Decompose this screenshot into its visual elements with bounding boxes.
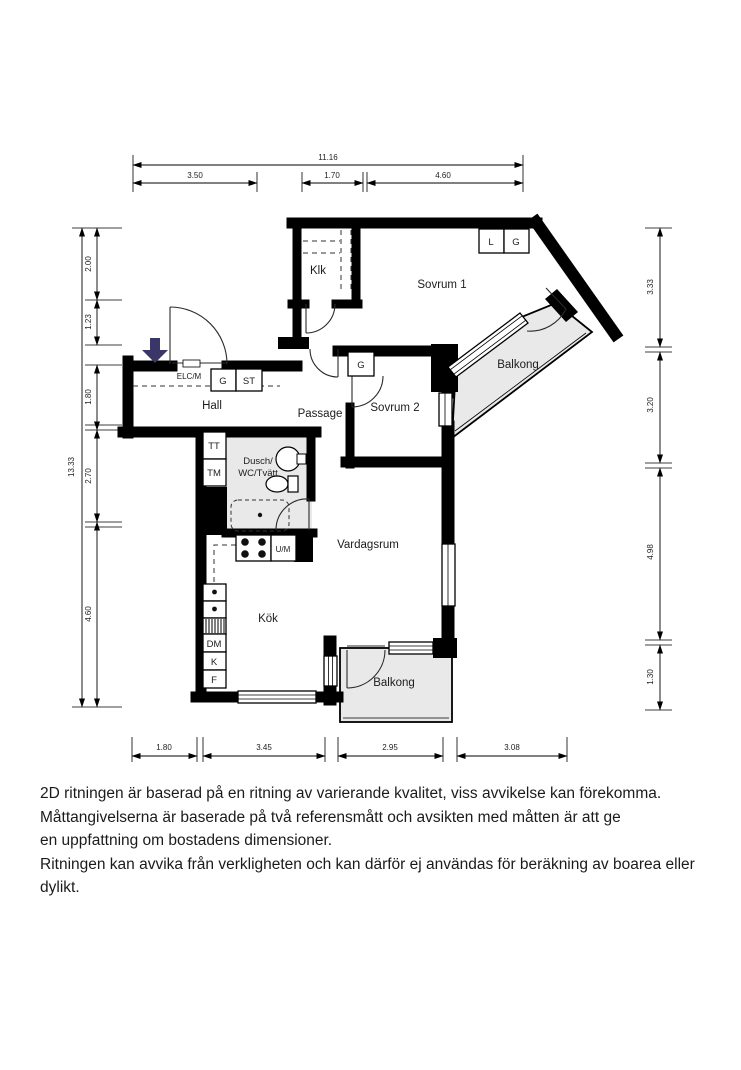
room-label-sovrum2: Sovrum 2 (370, 402, 419, 414)
room-label-klk: Klk (310, 265, 326, 277)
label-um: U/M (276, 545, 291, 554)
dim-bottom-4: 3.08 (504, 743, 520, 752)
wall-jamb-sovrum1-door (278, 337, 309, 349)
room-label-vardagsrum: Vardagsrum (337, 539, 399, 551)
floor-plan-canvas: Klk Sovrum 1 Sovrum 2 Balkong Hall Passa… (0, 0, 741, 1070)
room-label-balkong-upper: Balkong (497, 359, 539, 371)
label-g-sovrum1: G (512, 237, 519, 248)
dim-left-4: 2.70 (84, 468, 93, 484)
disclaimer-line-3: en uppfattning om bostadens dimensioner. (40, 829, 730, 853)
dim-right-3: 4.98 (646, 544, 655, 560)
wall-corner-balcony (433, 638, 457, 658)
dim-left-2: 1.23 (84, 314, 93, 330)
outer-walls (123, 223, 537, 697)
entry-door-arc (170, 307, 227, 364)
dim-bottom-1: 1.80 (156, 743, 172, 752)
livingroom-east-window (442, 544, 455, 606)
room-label-bathroom-1: Dusch/ (243, 456, 273, 467)
kitchen-window (238, 691, 316, 703)
dim-left-total: 13.33 (67, 456, 76, 477)
sink-drain-2 (212, 607, 217, 612)
stove (236, 535, 271, 561)
wall-block-kitchen (294, 529, 313, 562)
room-label-hall: Hall (202, 400, 222, 412)
stove-burner-1 (241, 538, 249, 546)
label-st-hall: ST (243, 376, 255, 387)
dim-top-total: 11.16 (318, 153, 338, 162)
elcm-cabinet (183, 360, 200, 367)
label-tm: TM (207, 468, 221, 479)
counter-hatch-lines (206, 619, 224, 633)
label-tt: TT (208, 441, 220, 452)
label-l-sovrum1: L (488, 237, 493, 248)
dim-left-5: 4.60 (84, 606, 93, 622)
disclaimer-line-1: 2D ritningen är baserad på en ritning av… (40, 782, 730, 806)
room-labels: Klk Sovrum 1 Sovrum 2 Balkong Hall Passa… (202, 265, 539, 689)
bathroom-sink-tap (297, 454, 306, 464)
dim-top-3: 4.60 (435, 171, 451, 180)
dim-right-4: 1.30 (646, 669, 655, 685)
room-label-sovrum1: Sovrum 1 (417, 279, 466, 291)
room-label-passage: Passage (298, 408, 343, 420)
sink-drain-1 (212, 590, 217, 595)
disclaimer-line-2: Måttangivelserna är baserade på två refe… (40, 806, 730, 830)
sovrum2-window (439, 393, 452, 426)
label-dm: DM (207, 639, 222, 650)
wall-block-laundry (197, 487, 227, 535)
livingroom-west-balcony-window (324, 656, 337, 686)
dim-bottom-3: 2.95 (382, 743, 398, 752)
dim-right-1: 3.33 (646, 279, 655, 295)
dim-bottom-2: 3.45 (256, 743, 272, 752)
dim-top-1: 3.50 (187, 171, 203, 180)
label-k: K (211, 657, 218, 668)
toilet-tank (288, 476, 298, 492)
entry-arrow-icon (142, 338, 168, 363)
label-elcm: ELC/M (177, 372, 202, 381)
room-label-balkong-lower: Balkong (373, 677, 415, 689)
klk-door-arc (306, 304, 335, 333)
walls (123, 222, 615, 699)
room-label-kok: Kök (258, 613, 278, 625)
dim-left-3: 1.80 (84, 389, 93, 405)
dim-right-2: 3.20 (646, 397, 655, 413)
floor-plan-page: Klk Sovrum 1 Sovrum 2 Balkong Hall Passa… (0, 0, 741, 1070)
room-label-bathroom-2: WC/Tvätt (238, 468, 278, 479)
stove-burner-2 (258, 538, 266, 546)
label-g-sovrum2: G (357, 360, 364, 371)
label-g-hall: G (219, 376, 226, 387)
stove-burner-4 (258, 550, 266, 558)
dim-left-1: 2.00 (84, 256, 93, 272)
kitchen-counter-dashed (214, 545, 236, 583)
stove-burner-3 (241, 550, 249, 558)
bathroom-sink (276, 447, 300, 471)
disclaimer-text: 2D ritningen är baserad på en ritning av… (40, 782, 730, 900)
livingroom-south-window (389, 642, 433, 654)
shower-drain (258, 513, 262, 517)
dim-top-2: 1.70 (324, 171, 340, 180)
label-f: F (211, 675, 217, 686)
disclaimer-line-4: Ritningen kan avvika från verkligheten o… (40, 853, 730, 900)
